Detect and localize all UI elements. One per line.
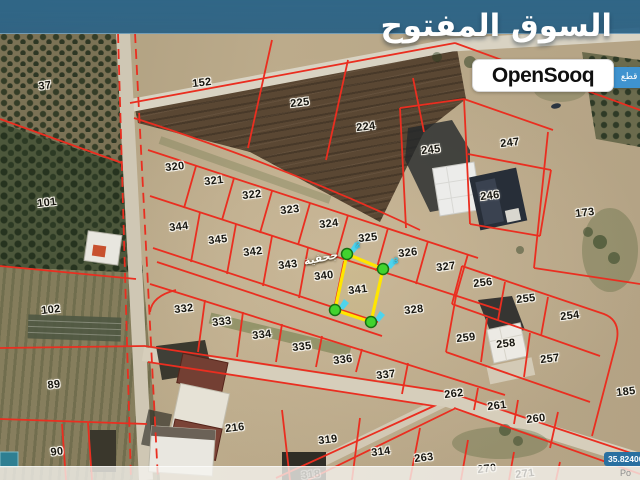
roads xyxy=(123,33,640,480)
parcel-label-332: 332 xyxy=(174,302,195,316)
parcel-label-90: 90 xyxy=(50,445,64,458)
buildings xyxy=(0,102,561,480)
highlighted-parcel-341 xyxy=(330,242,398,328)
parcel-label-224: 224 xyxy=(356,120,377,134)
opensooq-arabic-logo: السوق المفتوح xyxy=(380,8,612,44)
parcel-label-319: 319 xyxy=(318,433,339,447)
parcel-label-337: 337 xyxy=(376,368,397,382)
water-pool-90 xyxy=(0,452,18,467)
corner-marker-label-3: 3 xyxy=(394,257,398,266)
parcel-label-246: 246 xyxy=(480,189,501,203)
parcel-label-102: 102 xyxy=(41,303,62,317)
parcel-label-225: 225 xyxy=(290,96,311,110)
corner-pin-icons xyxy=(339,242,397,322)
parcel-label-258: 258 xyxy=(496,337,517,351)
parcel-label-345: 345 xyxy=(208,233,229,247)
vegetation-patches xyxy=(160,52,638,459)
parcel-label-245: 245 xyxy=(421,143,442,157)
opensooq-logo-card: OpenSooq xyxy=(472,59,614,92)
parcel-label-344: 344 xyxy=(169,220,190,234)
parcel-label-256: 256 xyxy=(473,276,494,290)
parcel-label-254: 254 xyxy=(560,309,581,323)
parcel-label-328: 328 xyxy=(404,303,425,317)
parcel-label-255: 255 xyxy=(516,292,537,306)
parcel-label-343: 343 xyxy=(278,258,299,272)
parcel-label-341: 341 xyxy=(348,283,369,297)
parcel-label-326: 326 xyxy=(398,246,419,260)
parcel-label-260: 260 xyxy=(526,412,547,426)
parcel-label-342: 342 xyxy=(243,245,264,259)
parcel-label-323: 323 xyxy=(280,203,301,217)
parcel-label-185: 185 xyxy=(616,385,637,399)
parcel-label-152: 152 xyxy=(192,76,213,90)
building-246 xyxy=(469,168,527,231)
parcel-label-335: 335 xyxy=(292,340,313,354)
parcel-label-334: 334 xyxy=(252,328,273,342)
parcel-label-263: 263 xyxy=(414,451,435,465)
parcel-label-261: 261 xyxy=(487,399,508,413)
parcel-label-321: 321 xyxy=(204,174,225,188)
parcel-label-257: 257 xyxy=(540,352,561,366)
coordinates-label: 35.82400,3 xyxy=(604,452,640,466)
greenhouse-102 xyxy=(28,314,122,341)
parcel-label-173: 173 xyxy=(575,206,596,220)
parcel-label-324: 324 xyxy=(319,217,340,231)
satellite-cadastral-map: 3710110289901522252242452472461733203213… xyxy=(0,0,640,480)
building-101 xyxy=(84,231,122,265)
houses-216 xyxy=(141,340,236,460)
building-245 xyxy=(405,120,481,216)
parcel-label-336: 336 xyxy=(333,353,354,367)
place-name-label: جحفية xyxy=(303,248,340,268)
parcel-label-37: 37 xyxy=(38,79,52,92)
parcel-label-216: 216 xyxy=(225,421,246,435)
parcel-label-322: 322 xyxy=(242,188,263,202)
parcel-label-333: 333 xyxy=(212,315,233,329)
parcel-label-259: 259 xyxy=(456,331,477,345)
parcel-label-262: 262 xyxy=(444,387,465,401)
parcel-label-327: 327 xyxy=(436,260,457,274)
parcel-label-320: 320 xyxy=(165,160,186,174)
parcel-label-325: 325 xyxy=(358,231,379,245)
bottom-translucent-strip xyxy=(0,466,640,480)
opensooq-logo-text: OpenSooq xyxy=(492,64,594,88)
parcel-label-89: 89 xyxy=(47,378,61,391)
parcel-label-247: 247 xyxy=(500,136,521,150)
corner-marker-label-2: 2 xyxy=(356,241,360,250)
parcel-label-314: 314 xyxy=(371,445,392,459)
parcel-label-101: 101 xyxy=(37,196,58,210)
parcel-label-340: 340 xyxy=(314,269,335,283)
powered-by-partial-text: Po xyxy=(620,468,631,478)
car-on-road xyxy=(551,102,562,109)
building-258 xyxy=(478,296,535,384)
